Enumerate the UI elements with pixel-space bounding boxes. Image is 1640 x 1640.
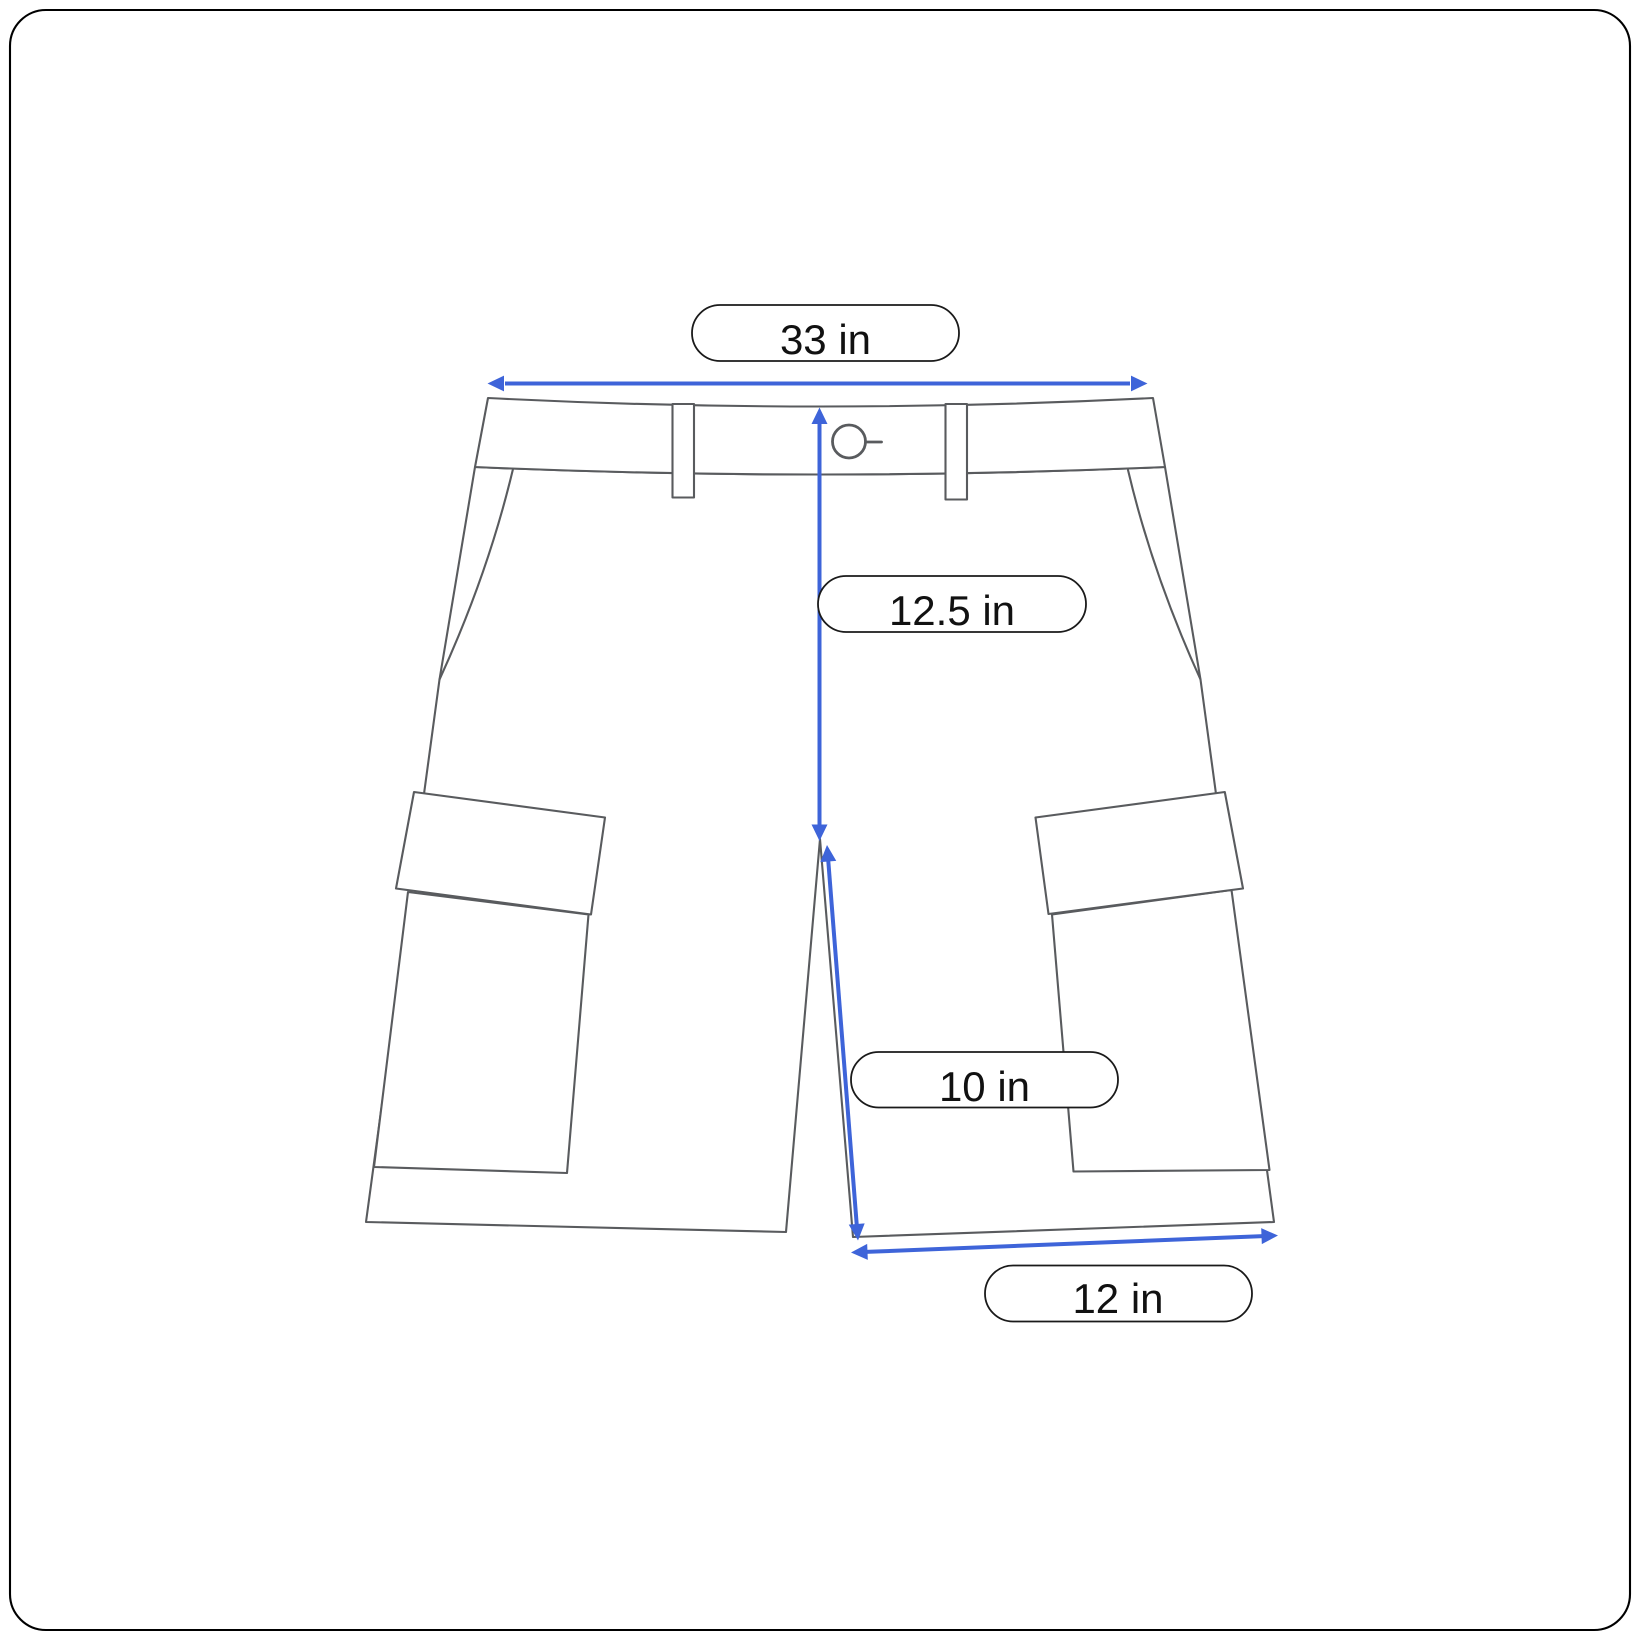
svg-text:10 in: 10 in [939,1063,1030,1110]
svg-text:33 in: 33 in [780,316,871,363]
svg-text:12.5 in: 12.5 in [889,587,1015,634]
svg-text:12 in: 12 in [1072,1275,1163,1322]
